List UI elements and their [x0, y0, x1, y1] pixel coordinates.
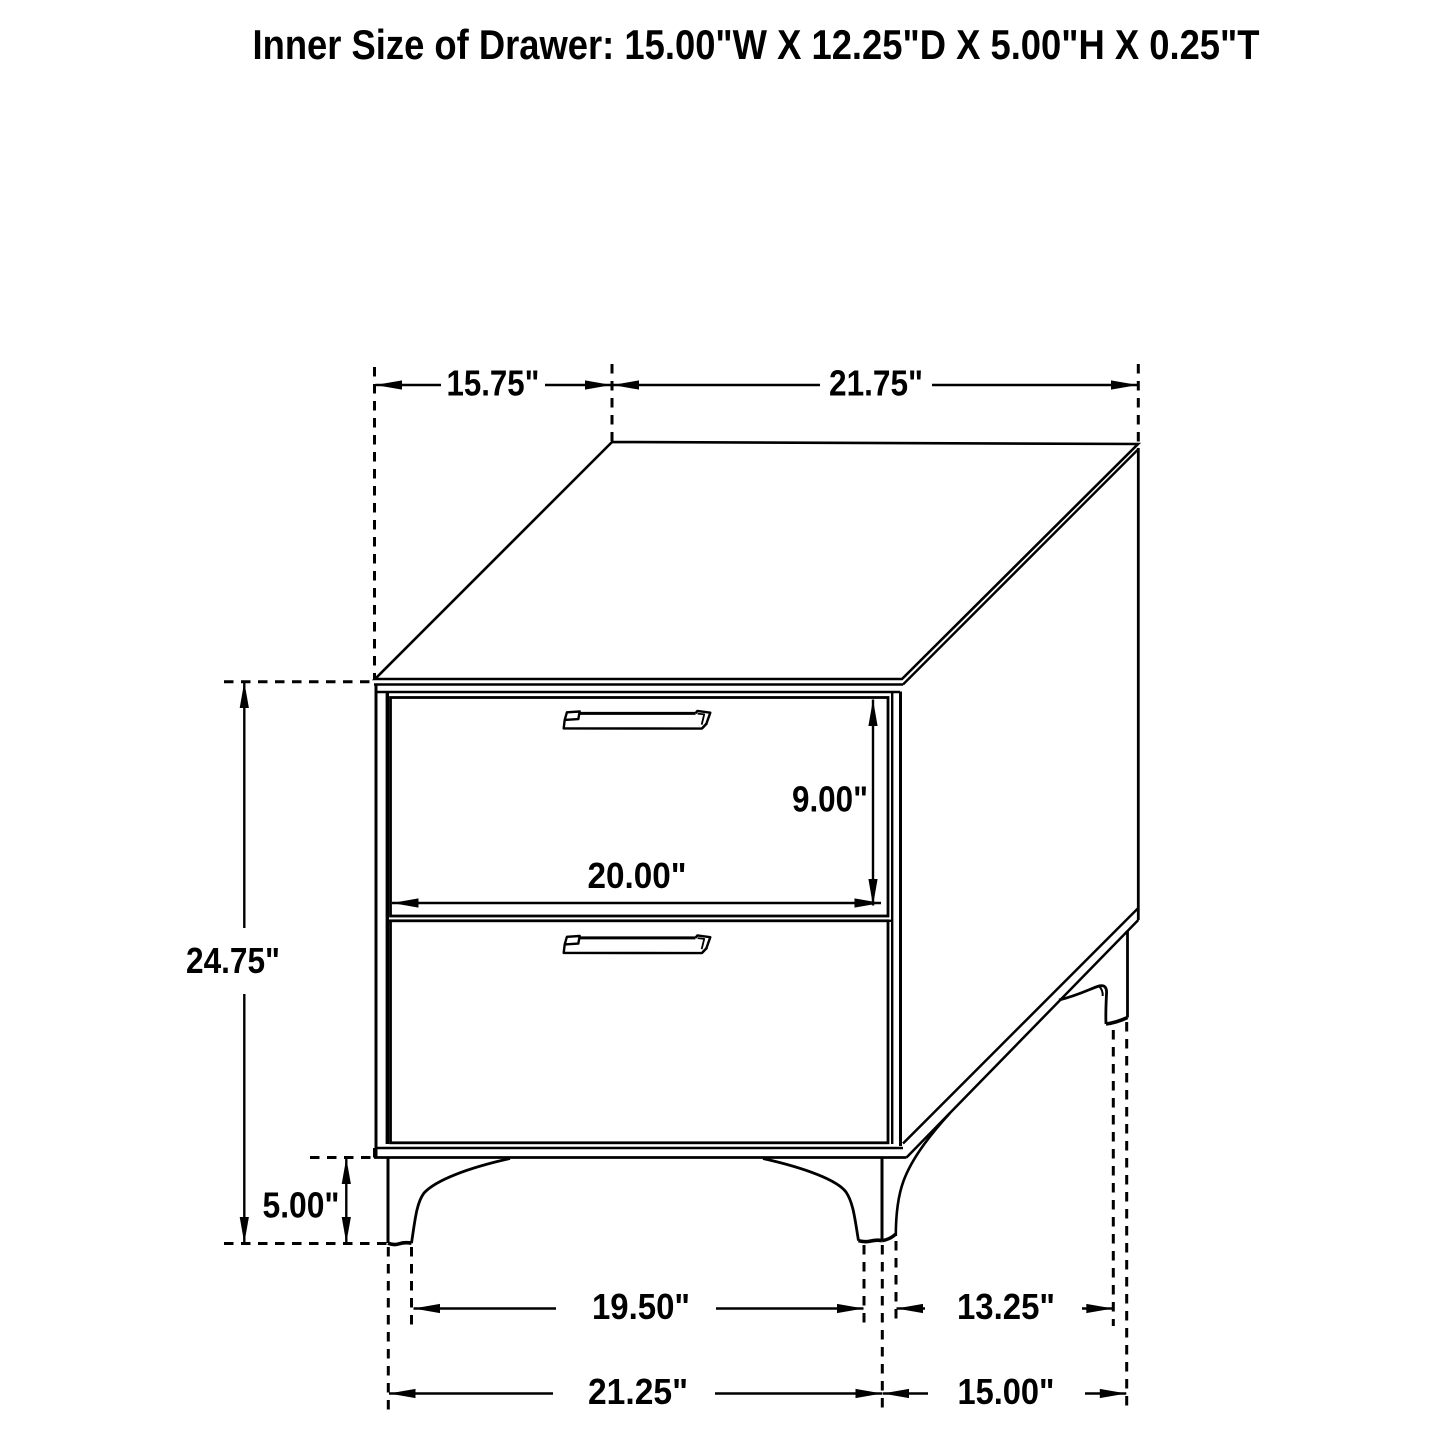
- svg-text:20.00": 20.00": [588, 855, 687, 896]
- svg-text:24.75": 24.75": [186, 940, 280, 981]
- svg-text:21.25": 21.25": [588, 1371, 688, 1412]
- svg-text:Inner Size of Drawer: 15.00"W: Inner Size of Drawer: 15.00"W X 12.25"D …: [253, 21, 1260, 68]
- svg-text:21.75": 21.75": [829, 363, 923, 404]
- svg-text:15.00": 15.00": [958, 1371, 1055, 1412]
- svg-text:15.75": 15.75": [447, 363, 540, 404]
- svg-text:13.25": 13.25": [957, 1286, 1055, 1327]
- svg-text:5.00": 5.00": [263, 1185, 340, 1226]
- svg-text:19.50": 19.50": [592, 1286, 690, 1327]
- svg-text:9.00": 9.00": [792, 779, 868, 820]
